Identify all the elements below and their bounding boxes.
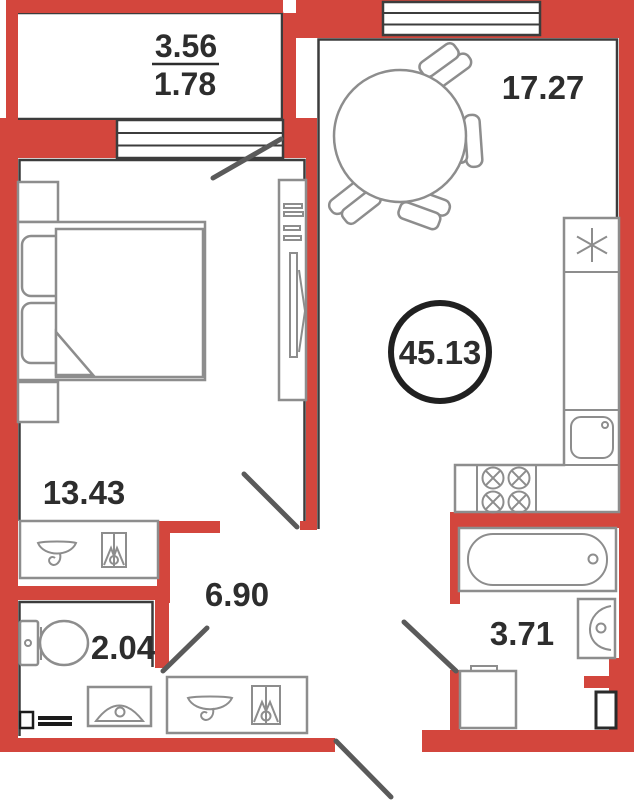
dining-table [334,70,466,202]
entrance-door-swing [336,741,391,797]
wall-segment [283,118,317,158]
radiator-icon [20,712,72,728]
bedroom-area-label: 13.43 [43,474,126,511]
toilet-tank [20,621,38,665]
toilet-bowl [40,621,88,665]
wall-niche-radiator [596,692,616,728]
balcony-area-full-label: 3.56 [155,28,217,64]
floor-plan: 3.56 1.78 17.27 13.43 6.90 2.04 3.71 45.… [0,0,634,800]
window-band [383,2,540,35]
bathtub [459,528,616,591]
wall-segment [306,158,317,530]
wc-door-swing [163,628,207,671]
floor-plan-canvas: 3.56 1.78 17.27 13.43 6.90 2.04 3.71 45.… [0,0,634,800]
wall-segment [170,521,220,533]
wall-segment [0,738,335,752]
wall-segment [155,600,169,668]
wall-segment [18,120,117,158]
bed [18,222,205,380]
balcony-outline [13,13,282,119]
wall-segment [450,670,460,738]
washing-machine [460,666,516,728]
total-area-badge: 45.13 [391,303,489,401]
hallway-vanity [167,677,307,733]
blanket [56,229,203,377]
bathroom-door-swing [404,622,456,671]
wall-segment [422,730,634,752]
nightstand [18,382,58,422]
wc-area-label: 2.04 [91,629,156,666]
living-room-window [383,2,540,35]
wall-segment [6,0,18,120]
living-kitchen-area-label: 17.27 [502,69,585,106]
wall-segment [584,676,609,688]
wall-segment [283,13,296,118]
wc-washbasin [88,687,151,726]
bathroom-washbasin [578,599,615,658]
wall-segment [6,0,283,13]
wardrobe [279,180,306,400]
hallway-area-label: 6.90 [205,576,269,613]
wall-segment [450,512,619,528]
nightstand [18,182,58,222]
bedroom-niche-vanity [20,521,158,578]
total-area-value: 45.13 [399,334,482,371]
balcony-area-reduced-label: 1.78 [154,66,216,102]
toilet [20,621,88,665]
wall-segment [18,586,157,600]
wall-segment [0,118,18,752]
bedroom-door-swing [244,474,297,527]
bathroom-area-label: 3.71 [490,615,554,652]
wall-segment [619,0,634,752]
wall-segment [300,521,317,530]
